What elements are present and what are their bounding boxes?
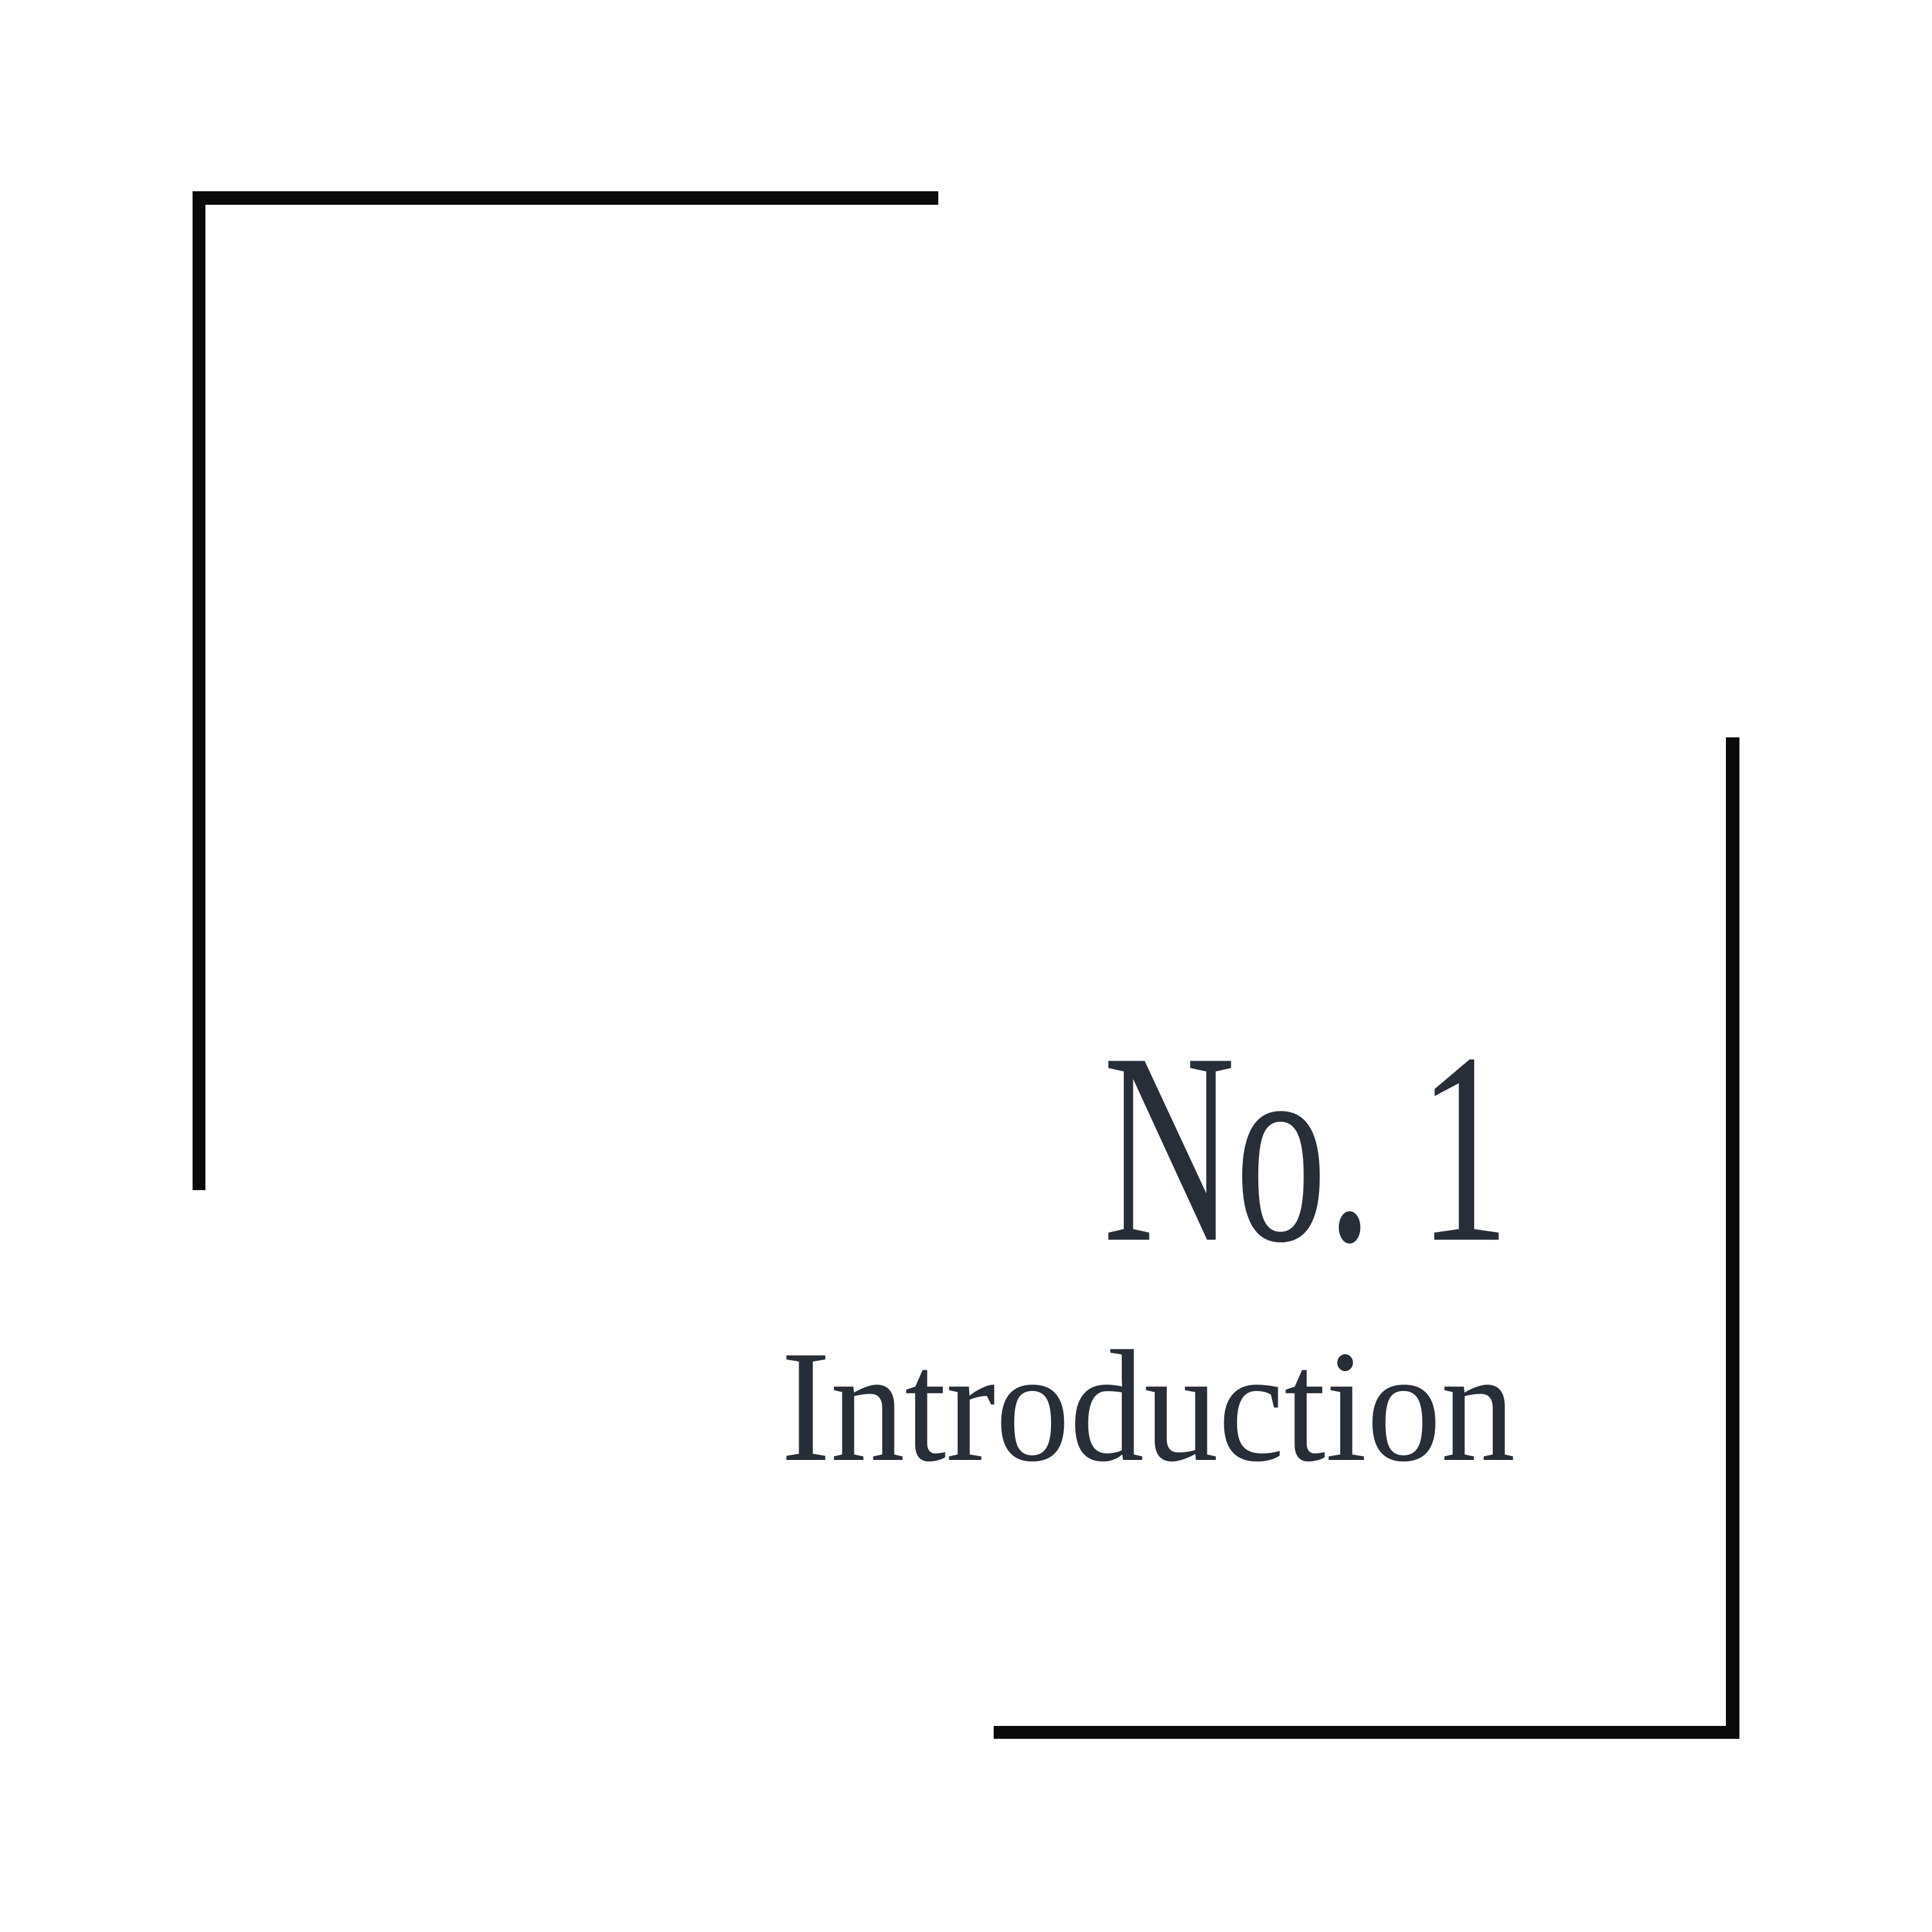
chapter-divider-page: No. 1 Introduction	[0, 0, 1932, 1932]
top-left-corner-bracket	[193, 191, 938, 1190]
chapter-number: No. 1	[1103, 1011, 1510, 1284]
chapter-title: Introduction	[781, 1327, 1515, 1486]
